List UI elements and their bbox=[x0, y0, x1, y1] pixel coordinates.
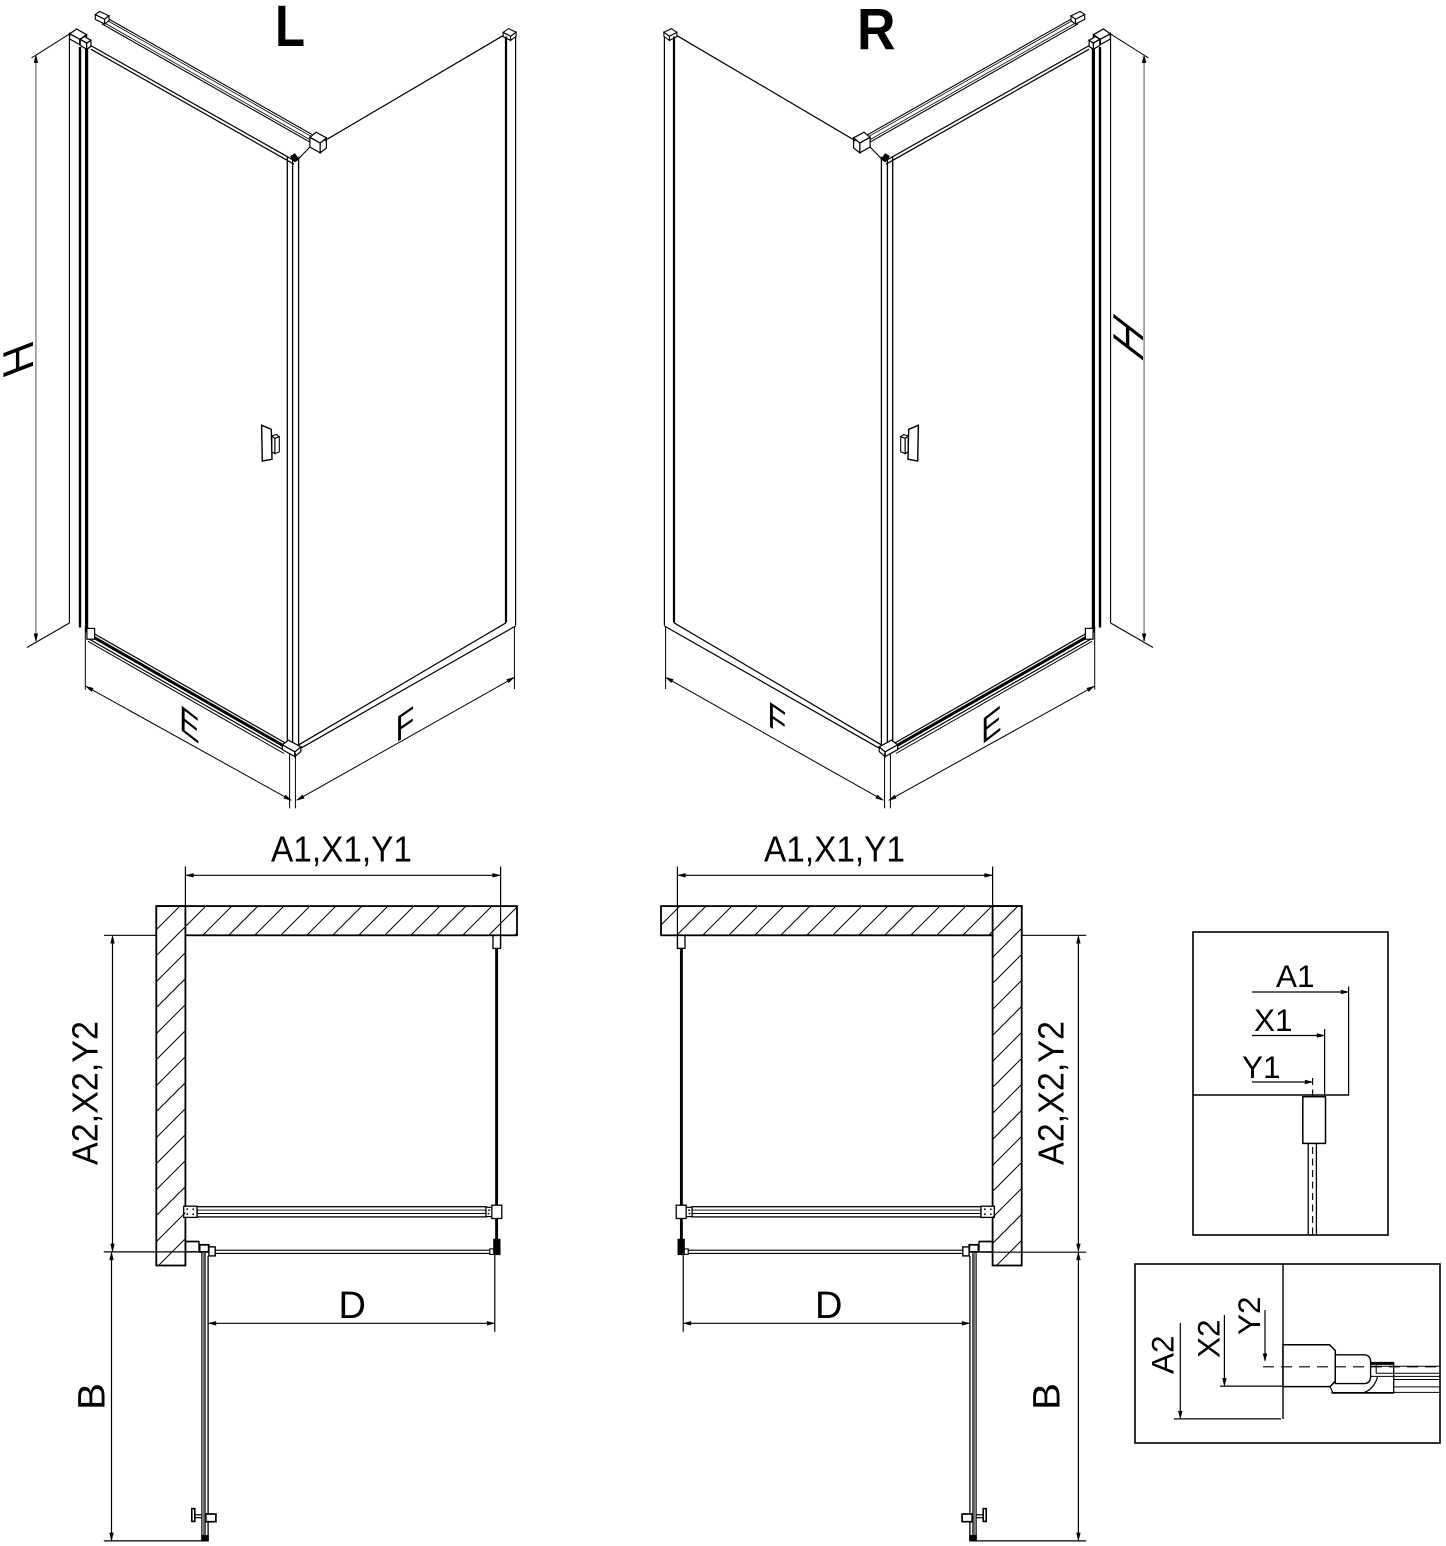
svg-text:B: B bbox=[72, 1383, 114, 1410]
svg-text:Y1: Y1 bbox=[1242, 1049, 1281, 1085]
svg-text:D: D bbox=[339, 1285, 366, 1327]
svg-text:A1,X1,Y1: A1,X1,Y1 bbox=[271, 829, 412, 870]
svg-text:X2: X2 bbox=[1191, 1319, 1227, 1358]
svg-text:X1: X1 bbox=[1254, 1002, 1293, 1038]
svg-text:A2: A2 bbox=[1145, 1335, 1181, 1374]
svg-text:D: D bbox=[815, 1285, 842, 1327]
svg-text:L: L bbox=[275, 0, 305, 59]
svg-text:A1: A1 bbox=[1276, 958, 1315, 994]
svg-text:A2,X2,Y2: A2,X2,Y2 bbox=[1031, 1021, 1072, 1165]
svg-text:Y2: Y2 bbox=[1231, 1296, 1267, 1335]
svg-text:R: R bbox=[857, 0, 896, 63]
svg-text:A1,X1,Y1: A1,X1,Y1 bbox=[764, 829, 905, 870]
svg-text:B: B bbox=[1027, 1383, 1069, 1410]
svg-text:A2,X2,Y2: A2,X2,Y2 bbox=[65, 1021, 106, 1165]
